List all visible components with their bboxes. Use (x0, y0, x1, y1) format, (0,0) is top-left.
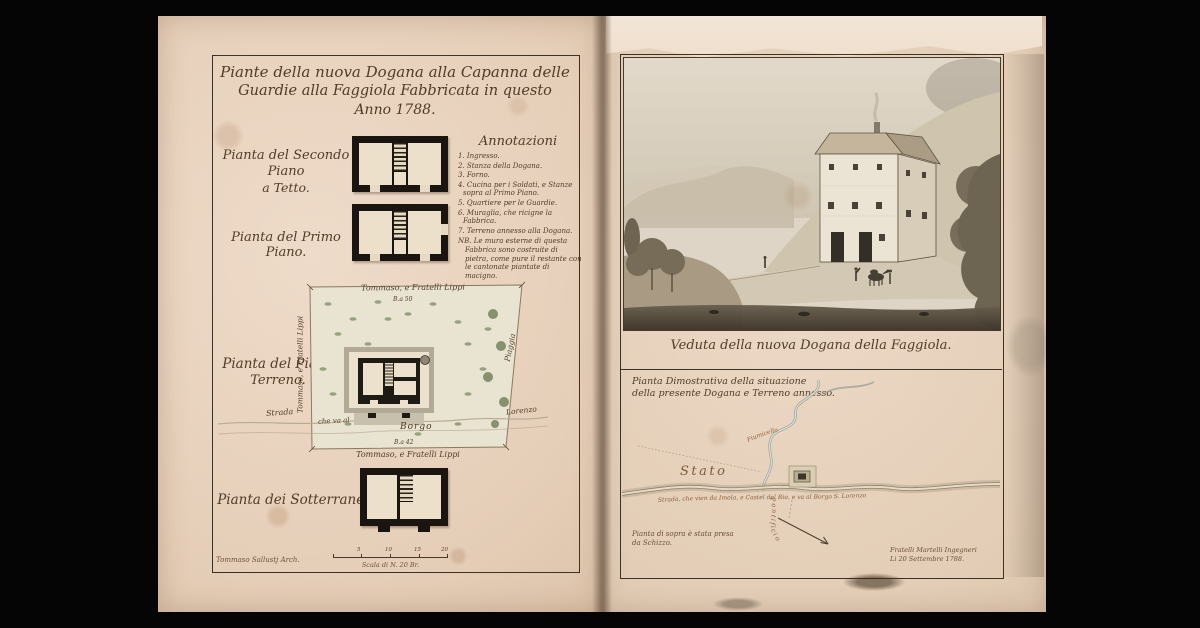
label-second-floor-line1: Pianta del Secondo Piano (210, 148, 362, 180)
door-opening (370, 400, 378, 404)
scale-tick-label: 10 (385, 547, 392, 553)
door-opening (370, 185, 380, 192)
label-basement: Pianta dei Sotterranei. (210, 492, 380, 508)
scale-tick-label: 20 (441, 547, 448, 553)
plan-room (359, 143, 392, 185)
measure-top: B.a 50 (393, 296, 412, 303)
scale-tick-label: 5 (357, 547, 361, 553)
plan-room (408, 143, 441, 185)
road-label: Strada, che vien da Imola, e Castel del … (658, 492, 867, 504)
signature-line1: Fratelli Martelli Ingegneri (890, 546, 1000, 555)
right-page: Veduta della nuova Dogana della Faggiola… (602, 16, 1046, 612)
architect-signature: Tommaso Sallustj Arch. (216, 556, 300, 564)
veduta-caption: Veduta della nuova Dogana della Faggiola… (620, 338, 1002, 353)
left-page: Piante della nuova Dogana alla Capanna d… (158, 16, 602, 612)
annotation-item: 5. Quartiere per le Guardie. (458, 199, 582, 208)
plan-hall (394, 240, 406, 254)
door-opening (400, 400, 408, 404)
plan-hall (400, 502, 413, 519)
title-line-2: Guardie alla Faggiola Fabbricata in ques… (214, 82, 576, 101)
right-trees (950, 154, 1000, 330)
veduta-painting (623, 57, 1001, 331)
door-opening (420, 254, 430, 261)
north-arrow (778, 518, 828, 544)
road-label-borgo: Borgo (400, 422, 433, 432)
plan-basement (360, 468, 448, 526)
scale-bar: 5 10 15 20 (333, 557, 448, 558)
facade-side (898, 154, 936, 262)
road-label-che-va-al: che va al (318, 416, 350, 426)
engineer-signature: Fratelli Martelli Ingegneri Li 20 Settem… (890, 546, 1000, 563)
annotation-item: 6. Muraglia, che ricigne la Fabbrica. (458, 209, 582, 226)
label-first-floor: Pianta del Primo Piano. (210, 230, 362, 260)
plan-room (359, 211, 392, 254)
annotation-item: 1. Ingresso. (458, 152, 582, 161)
door-opening (420, 185, 430, 192)
door-opening (370, 254, 380, 261)
foundation-stub (378, 526, 390, 532)
plan-first-floor (352, 204, 448, 261)
map-note-line1: Pianta di sopra è stata presa (632, 530, 782, 539)
annotation-item: 2. Stanza della Dogana. (458, 162, 582, 171)
signature-line2: Li 20 Settembre 1788. (890, 555, 1000, 564)
dark-foreground (624, 305, 1000, 330)
section-divider (620, 369, 1002, 370)
stato-label: Stato (680, 464, 727, 479)
measure-bottom: B.a 42 (394, 439, 413, 446)
title-line-3: Anno 1788. (214, 101, 576, 119)
scanned-document: Piante della nuova Dogana alla Capanna d… (0, 0, 1200, 628)
plan-room (394, 381, 416, 395)
plan-room (394, 363, 416, 377)
scale-tick-label: 15 (414, 547, 421, 553)
plan-room (363, 363, 383, 395)
map-note: Pianta di sopra è stata presa da Schizzo… (632, 530, 782, 548)
label-second-floor: Pianta del Secondo Piano a Tetto. (210, 148, 362, 195)
plan-room (408, 211, 441, 254)
owner-label-left: Tommaso, e Fratelli Lippi (296, 285, 305, 445)
owner-label-top: Tommaso, e Fratelli Lippi (323, 282, 503, 293)
dogana-on-map (789, 466, 816, 487)
page-edge-shadow (1002, 54, 1044, 577)
label-second-floor-line2: a Tetto. (210, 180, 362, 195)
annotation-item: 3. Forno. (458, 171, 582, 180)
staircase (400, 475, 413, 501)
chimney (874, 122, 880, 134)
plan-room (367, 475, 397, 519)
owner-label-bottom: Tommaso, e Fratelli Lippi (318, 450, 498, 459)
foundation-stub (418, 526, 430, 532)
annotations-list: 1. Ingresso. 2. Stanza della Dogana. 3. … (458, 152, 582, 280)
staircase (394, 143, 406, 171)
staircase (394, 211, 406, 239)
plan-second-floor (352, 136, 448, 192)
title-line-1: Piante della nuova Dogana alla Capanna d… (214, 62, 576, 82)
map-note-line2: da Schizzo. (632, 539, 782, 548)
plan-hall (394, 172, 406, 185)
plan-room (413, 475, 441, 519)
stream (764, 380, 874, 490)
site-plan-drawing (218, 274, 548, 460)
dashed-mark (789, 500, 792, 518)
sheet-title: Piante della nuova Dogana alla Capanna d… (214, 62, 576, 119)
road-label-strada: Strada (266, 407, 294, 418)
oven-circle (421, 356, 430, 365)
annotation-item: 4. Cucina per i Soldati, e Stanze sopra … (458, 181, 582, 198)
door-opening (441, 224, 448, 235)
annotations-heading: Annotazioni (456, 134, 580, 149)
ground-floor-building (344, 347, 434, 425)
scale-label: Scala di N. 20 Br. (333, 561, 448, 569)
annotation-item: 7. Terreno annesso alla Dogana. (458, 227, 582, 236)
page-gutter-shadow (592, 16, 612, 612)
